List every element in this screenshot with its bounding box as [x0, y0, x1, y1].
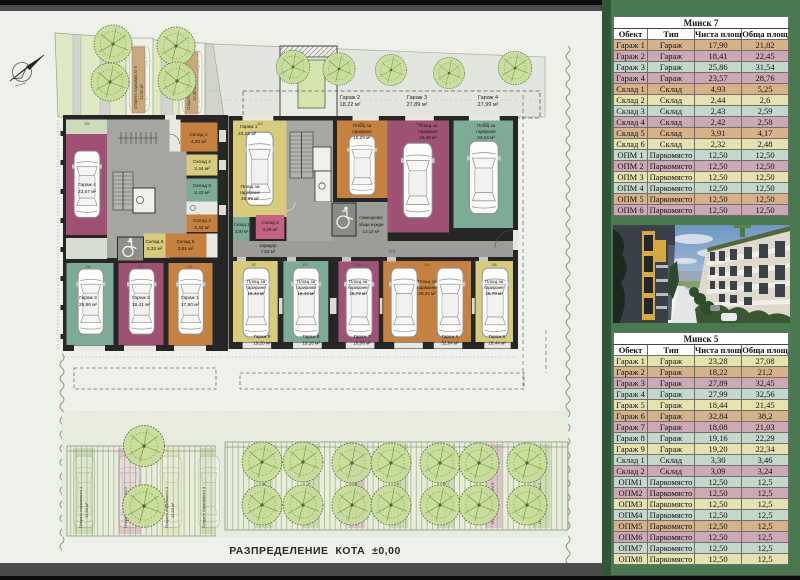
- svg-text:288: 288: [491, 263, 497, 267]
- svg-text:297: 297: [251, 263, 257, 267]
- svg-text:Склад 2: Склад 2: [193, 159, 211, 165]
- svg-text:15,70 м²: 15,70 м²: [485, 291, 503, 296]
- svg-text:12,13 м²: 12,13 м²: [363, 229, 380, 234]
- svg-text:360: 360: [257, 122, 263, 126]
- svg-text:гариране: гариране: [240, 191, 261, 196]
- svg-text:2,32 м²: 2,32 м²: [147, 246, 163, 252]
- svg-text:Гараж 1: Гараж 1: [240, 124, 258, 130]
- svg-text:350: 350: [359, 122, 365, 126]
- svg-text:Гараж 4: Гараж 4: [78, 182, 96, 188]
- svg-text:Гараж 2: Гараж 2: [132, 295, 150, 301]
- svg-text:общи нужди: общи нужди: [359, 222, 384, 227]
- svg-text:гариране: гариране: [352, 129, 372, 134]
- svg-text:19,20 м²: 19,20 м²: [253, 341, 271, 346]
- svg-text:Гараж 1: Гараж 1: [181, 295, 199, 301]
- svg-text:гариране: гариране: [476, 129, 496, 134]
- svg-text:27,99 м²: 27,99 м²: [478, 102, 499, 108]
- svg-text:3,09 м²: 3,09 м²: [263, 227, 278, 232]
- svg-text:25,86 м²: 25,86 м²: [79, 302, 98, 308]
- svg-text:Склад 1: Склад 1: [190, 132, 208, 138]
- svg-text:Гараж 7: Гараж 7: [354, 334, 371, 339]
- svg-text:291: 291: [138, 265, 144, 269]
- svg-text:23,28 м²: 23,28 м²: [238, 131, 257, 137]
- svg-text:Площ за: Площ за: [247, 279, 266, 284]
- svg-text:23,57 м²: 23,57 м²: [78, 189, 97, 195]
- svg-text:Склад 5: Склад 5: [177, 239, 195, 245]
- svg-text:Гараж 4: Гараж 4: [478, 95, 498, 101]
- svg-text:18,22 м²: 18,22 м²: [340, 102, 361, 108]
- svg-text:Открито паркомясто 4: Открито паркомясто 4: [201, 486, 206, 528]
- svg-text:18,08 м²: 18,08 м²: [353, 341, 371, 346]
- svg-text:гариране: гариране: [348, 285, 368, 290]
- svg-text:Площ за: Площ за: [485, 279, 504, 284]
- svg-text:Площ за: Площ за: [240, 184, 259, 190]
- svg-text:гариране: гариране: [246, 285, 266, 290]
- svg-text:2,43 м²: 2,43 м²: [194, 190, 210, 196]
- svg-text:18,41 м²: 18,41 м²: [132, 302, 151, 308]
- svg-text:29,32 м²: 29,32 м²: [418, 291, 436, 296]
- svg-text:295: 295: [355, 263, 361, 267]
- svg-text:гариране: гариране: [417, 285, 437, 290]
- svg-text:помещение: помещение: [359, 215, 383, 220]
- svg-text:502: 502: [415, 122, 421, 126]
- svg-text:23,64 м²: 23,64 м²: [477, 135, 495, 140]
- svg-text:17,90 м²: 17,90 м²: [181, 302, 200, 308]
- svg-text:19,99 м²: 19,99 м²: [241, 196, 260, 202]
- svg-text:Открито паркомясто 1: Открито паркомясто 1: [78, 486, 83, 528]
- svg-text:15,29 м²: 15,29 м²: [353, 135, 371, 140]
- svg-text:Склад 1: Склад 1: [234, 222, 250, 227]
- svg-text:536: 536: [424, 263, 430, 267]
- svg-text:15,72 м²: 15,72 м²: [349, 291, 367, 296]
- svg-text:18,44 м²: 18,44 м²: [488, 341, 506, 346]
- svg-text:Гараж 5: Гараж 5: [489, 334, 506, 339]
- svg-text:Гараж 8: Гараж 8: [303, 334, 320, 339]
- svg-text:Площ за: Площ за: [418, 279, 437, 284]
- svg-text:2,44 м²: 2,44 м²: [194, 166, 210, 172]
- svg-text:гариране: гариране: [418, 129, 438, 134]
- svg-text:гариране: гариране: [296, 285, 316, 290]
- svg-text:Гараж 9: Гараж 9: [254, 334, 271, 339]
- svg-text:12,50 м²: 12,50 м²: [84, 502, 89, 518]
- svg-text:Склад 2: Склад 2: [261, 220, 279, 225]
- svg-text:Гараж 6: Гараж 6: [442, 334, 459, 339]
- svg-text:19,16 м²: 19,16 м²: [302, 341, 320, 346]
- svg-text:Гараж 3: Гараж 3: [407, 95, 427, 101]
- svg-text:363: 363: [483, 122, 489, 126]
- svg-text:12,50 м²: 12,50 м²: [139, 83, 144, 100]
- svg-text:336: 336: [85, 265, 91, 269]
- svg-text:3,91 м²: 3,91 м²: [178, 246, 194, 252]
- svg-text:290: 290: [84, 122, 90, 126]
- svg-text:Открито паркомясто 5: Открито паркомясто 5: [133, 65, 138, 109]
- svg-text:27,89 м²: 27,89 м²: [407, 102, 428, 108]
- svg-text:300: 300: [302, 263, 308, 267]
- svg-text:Площ за: Площ за: [349, 279, 368, 284]
- svg-text:коридор: коридор: [260, 243, 277, 248]
- svg-text:Площ за: Площ за: [297, 279, 316, 284]
- svg-text:1211: 1211: [388, 250, 396, 254]
- svg-text:32,84 м²: 32,84 м²: [441, 341, 459, 346]
- svg-text:12,50 м²: 12,50 м²: [170, 502, 175, 518]
- svg-text:Площ за: Площ за: [419, 123, 438, 128]
- svg-text:Склад 6: Склад 6: [146, 239, 164, 245]
- svg-text:16,44 м²: 16,44 м²: [297, 291, 315, 296]
- svg-text:26,49 м²: 26,49 м²: [419, 135, 437, 140]
- svg-text:Склад 3: Склад 3: [193, 183, 211, 189]
- svg-text:Гараж 3: Гараж 3: [79, 295, 97, 301]
- svg-text:Склад 4: Склад 4: [193, 218, 211, 224]
- svg-text:2,42 м²: 2,42 м²: [194, 225, 210, 231]
- svg-text:3,30 м²: 3,30 м²: [235, 229, 249, 234]
- svg-text:291: 291: [187, 265, 193, 269]
- svg-text:4,93 м²: 4,93 м²: [191, 139, 207, 145]
- svg-text:7,92 м²: 7,92 м²: [261, 249, 276, 254]
- svg-text:гариране: гариране: [484, 285, 504, 290]
- svg-text:Гараж 2: Гараж 2: [340, 95, 360, 101]
- svg-text:16,44 м²: 16,44 м²: [247, 291, 265, 296]
